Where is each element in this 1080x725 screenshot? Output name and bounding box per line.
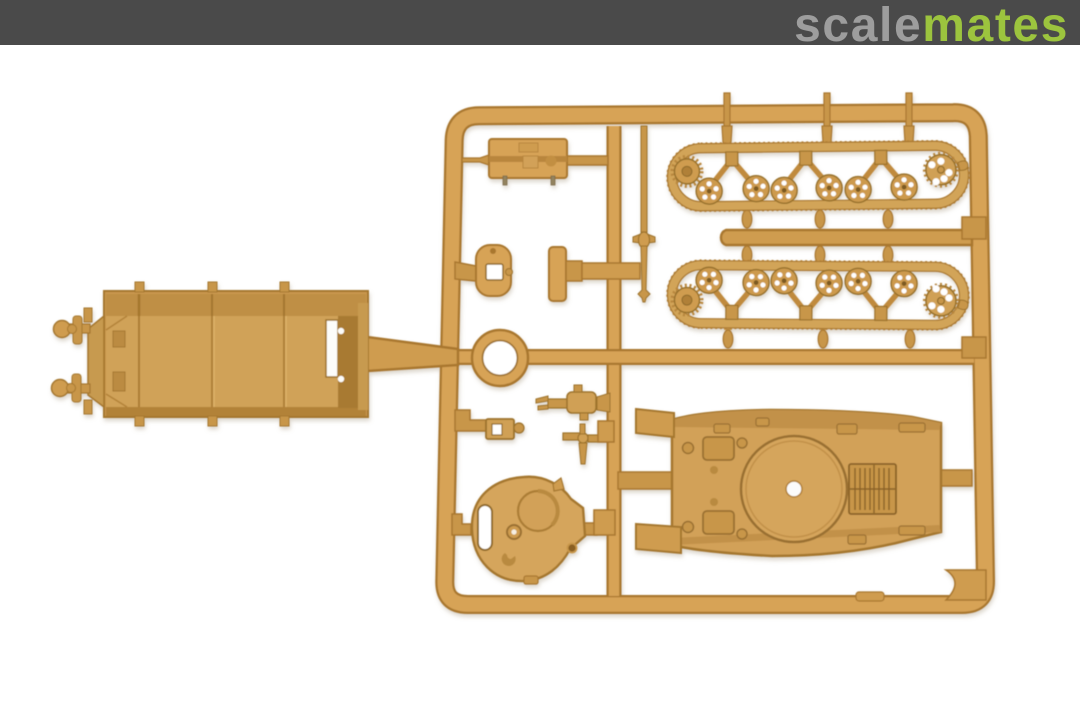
svg-text:scalemates: scalemates xyxy=(794,0,1069,52)
